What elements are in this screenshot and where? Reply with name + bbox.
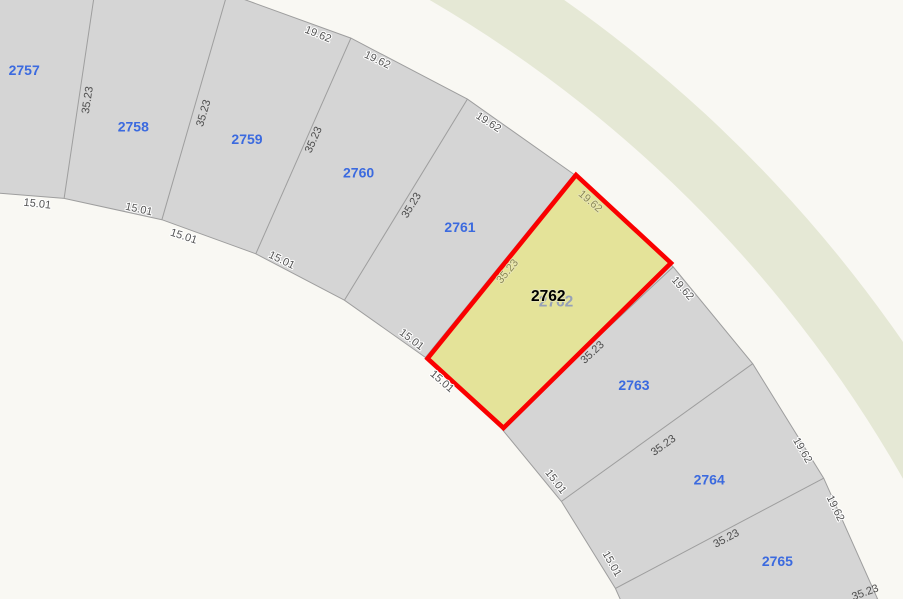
svg-text:2762: 2762	[531, 288, 565, 305]
svg-text:2758: 2758	[118, 119, 149, 135]
svg-text:2759: 2759	[231, 131, 262, 147]
svg-text:2761: 2761	[444, 219, 475, 235]
svg-text:2763: 2763	[618, 377, 649, 393]
svg-text:2760: 2760	[343, 165, 374, 181]
svg-text:2757: 2757	[9, 62, 40, 78]
svg-text:2764: 2764	[694, 472, 725, 488]
svg-text:2765: 2765	[762, 553, 793, 569]
